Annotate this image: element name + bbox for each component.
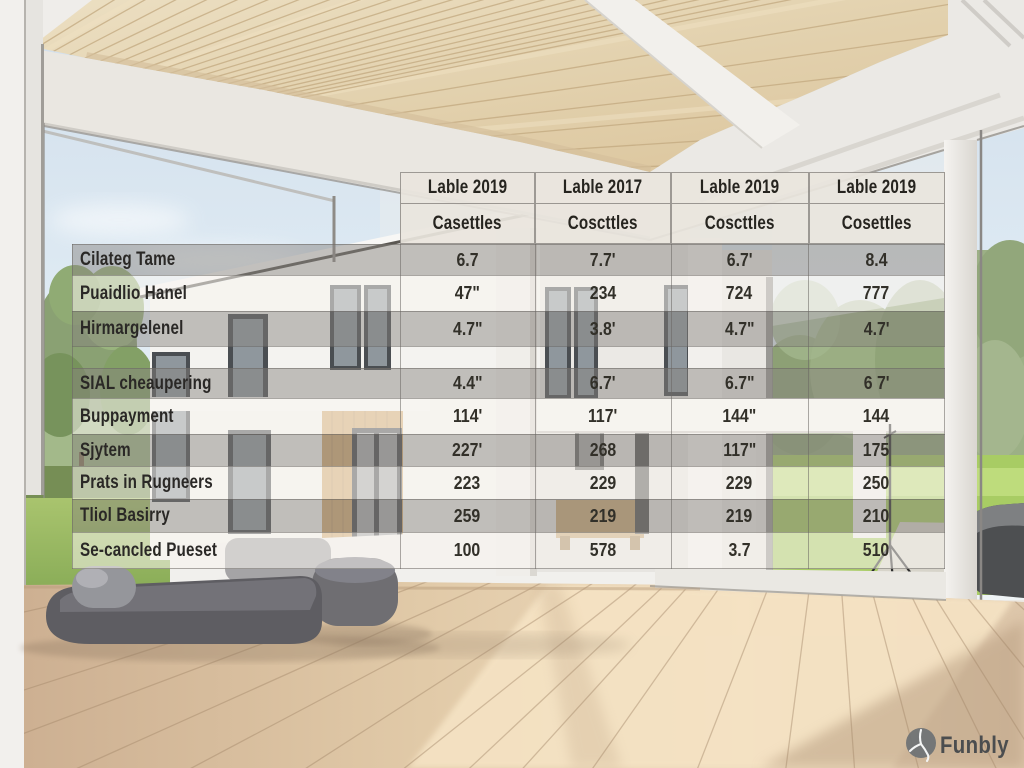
svg-text:Funbly: Funbly — [940, 731, 1009, 758]
